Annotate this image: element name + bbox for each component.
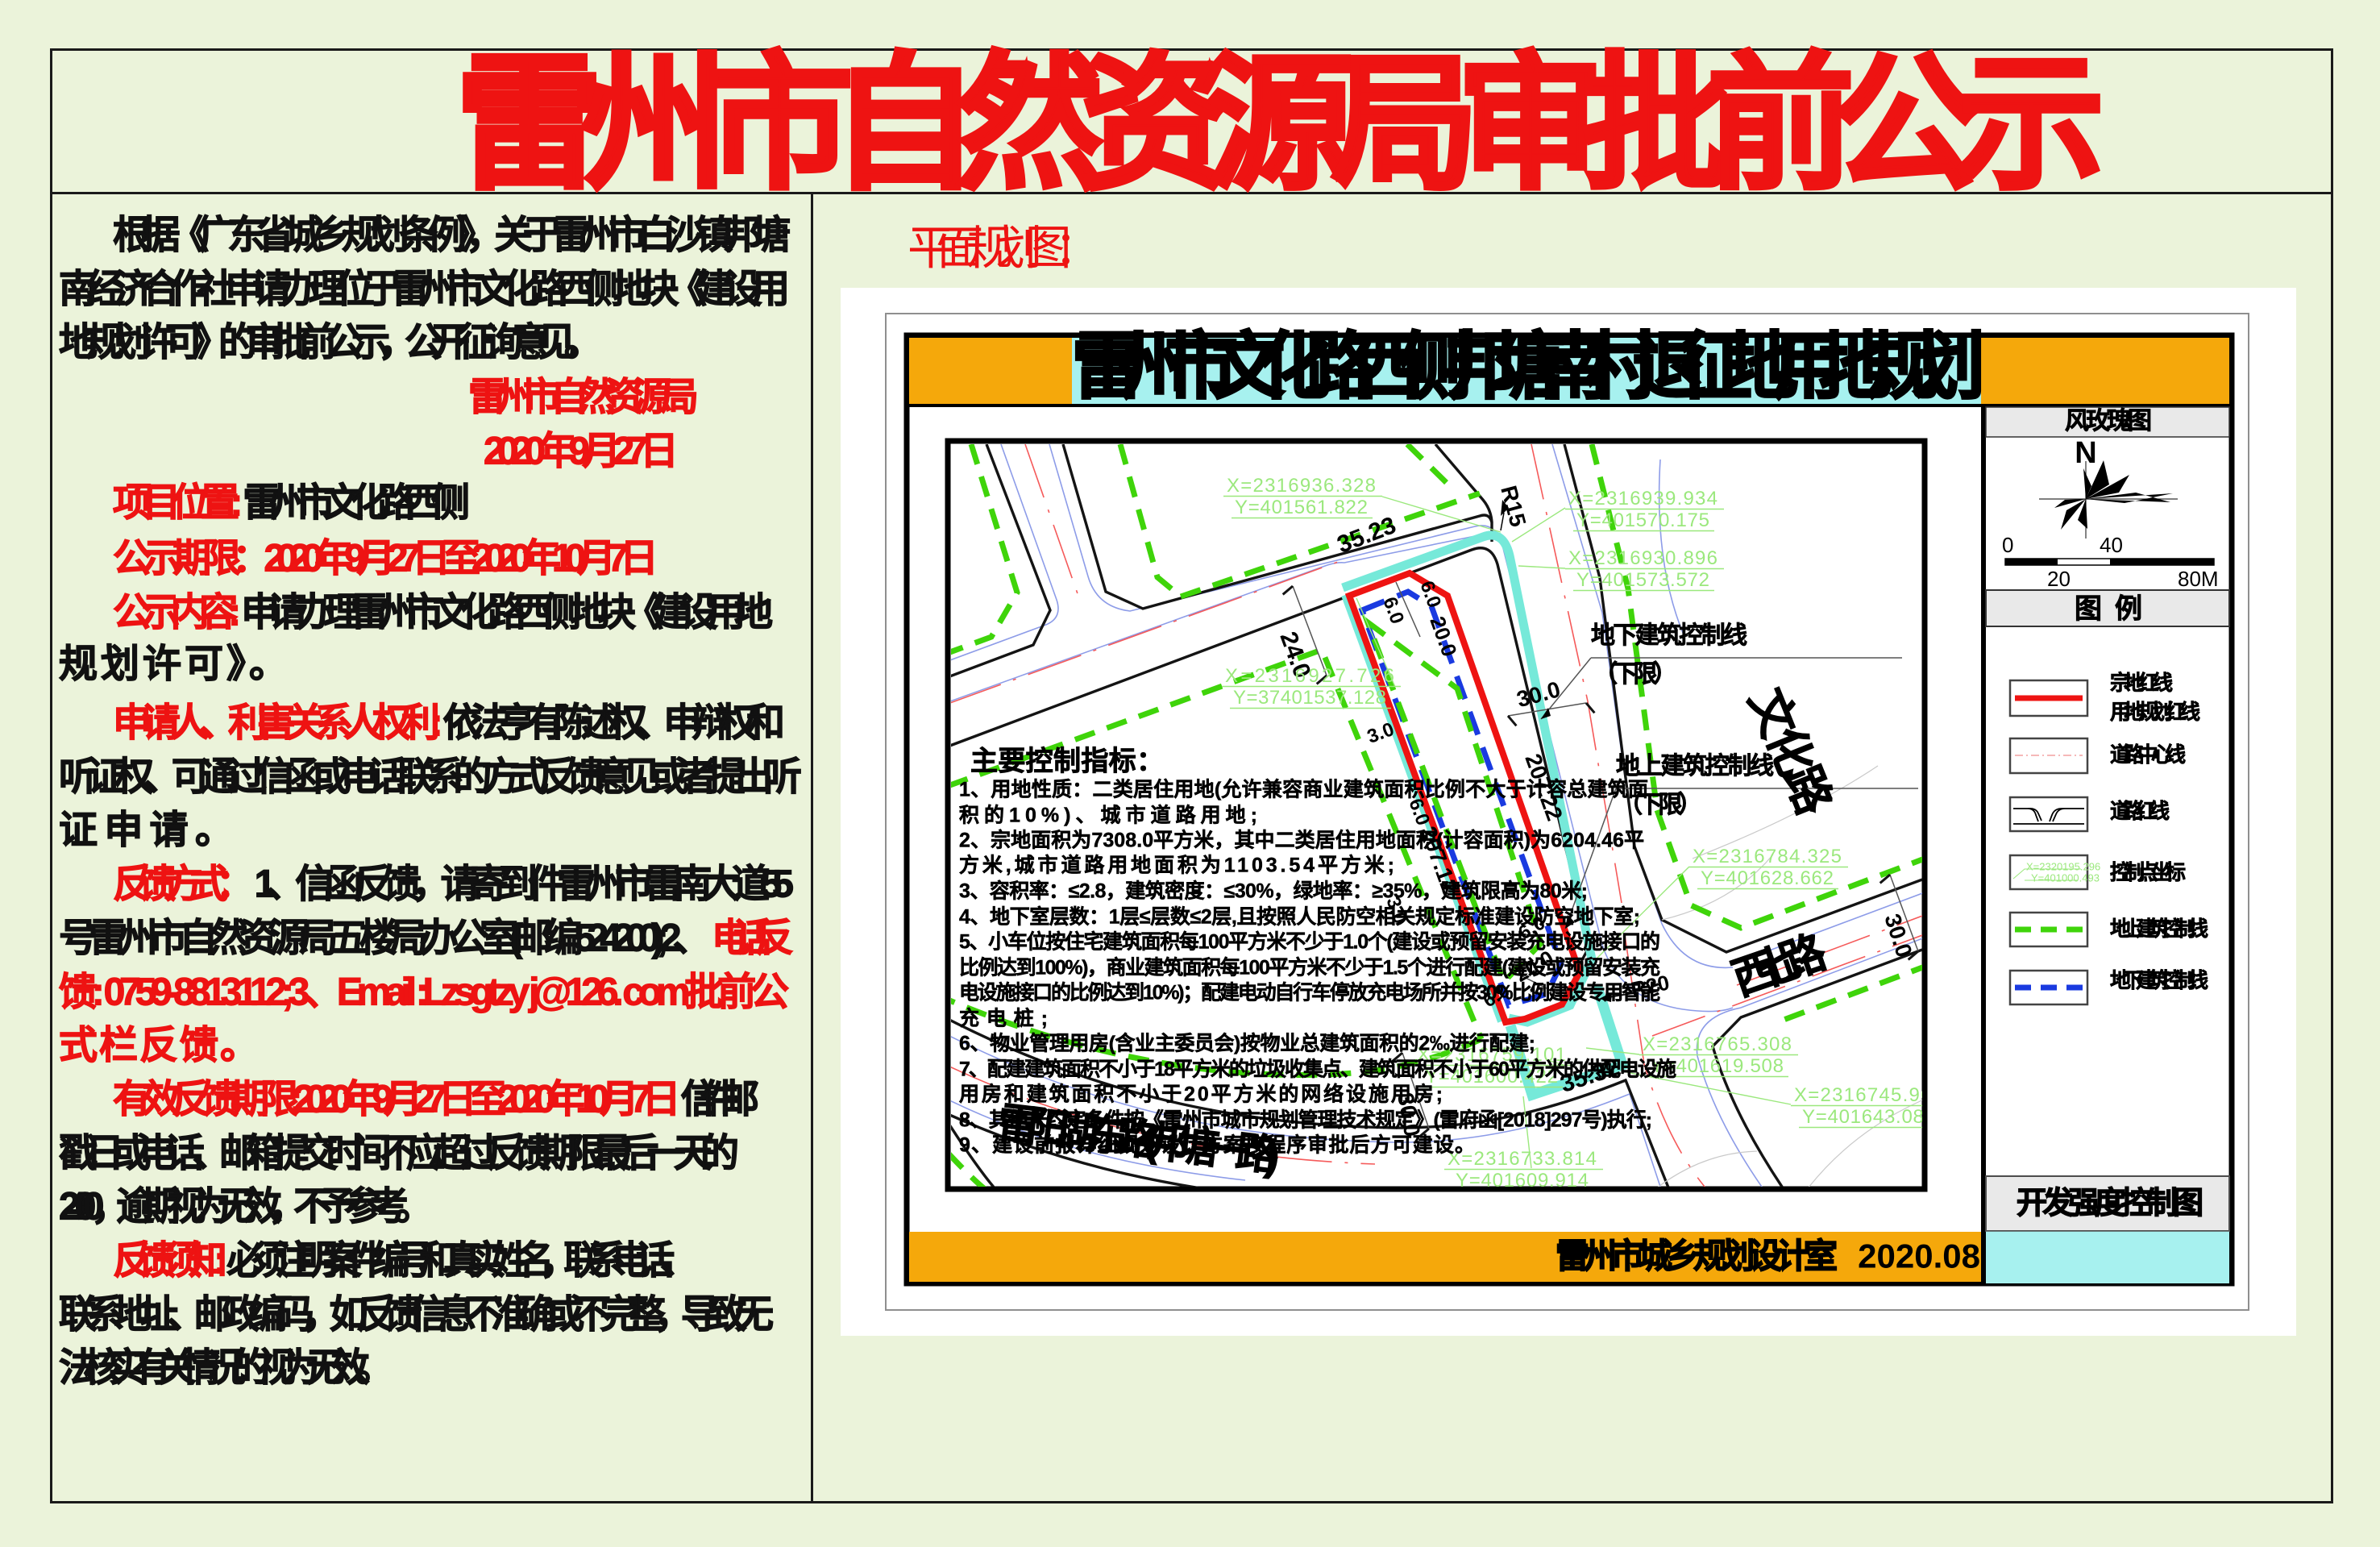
svg-text:式栏反馈。: 式栏反馈。 xyxy=(59,1024,259,1067)
svg-text:（下限）: （下限） xyxy=(1593,660,1677,688)
svg-text:项目位置:: 项目位置: xyxy=(113,481,243,524)
svg-text:依法亨有陈述权、申辩权和: 依法亨有陈述权、申辩权和 xyxy=(443,701,785,744)
svg-text:用房和建筑面积不小于20平方米的网络设施用房;: 用房和建筑面积不小于20平方米的网络设施用房; xyxy=(959,1083,1443,1106)
svg-text:1、用地性质：二类居住用地(允许兼容商业建筑面积比例不大于计: 1、用地性质：二类居住用地(允许兼容商业建筑面积比例不大于计容总建筑面 xyxy=(959,778,1648,801)
svg-text:反馈方式：: 反馈方式： xyxy=(113,863,255,905)
svg-text:Y=37401537.128: Y=37401537.128 xyxy=(1233,687,1386,709)
svg-text:开发强度控制图: 开发强度控制图 xyxy=(2017,1187,2203,1221)
svg-text:40: 40 xyxy=(2100,533,2123,557)
svg-text:道路红线: 道路红线 xyxy=(2110,799,2170,823)
svg-text:听证权、可通过信函或电话联系的方式反馈意见或者提出听: 听证权、可通过信函或电话联系的方式反馈意见或者提出听 xyxy=(59,755,802,798)
svg-text:2、宗地面积为7308.0平方米，其中二类居住用地面积(计容: 2、宗地面积为7308.0平方米，其中二类居住用地面积(计容面积)为6204.4… xyxy=(959,829,1644,852)
svg-text:有效反馈期限:2020年9月27日至2020年10月7日: 有效反馈期限:2020年9月27日至2020年10月7日 xyxy=(113,1078,681,1121)
svg-text:根据《广东省城乡规划条例》，关于雷州市白沙镇邦塘: 根据《广东省城乡规划条例》，关于雷州市白沙镇邦塘 xyxy=(113,214,791,256)
svg-text:5、小车位按住宅建筑面积每100平方米不少于1.0个(建设或: 5、小车位按住宅建筑面积每100平方米不少于1.0个(建设或预留安装充电设施接口… xyxy=(959,930,1660,954)
svg-text:X=2320195.296: X=2320195.296 xyxy=(2026,860,2100,872)
svg-text:申请办理雷州市文化路西侧地块《建设用地: 申请办理雷州市文化路西侧地块《建设用地 xyxy=(241,591,773,634)
svg-text:图 例: 图 例 xyxy=(2075,594,2142,625)
svg-text:地下建筑控制线: 地下建筑控制线 xyxy=(2110,968,2208,992)
svg-text:电话反: 电话反 xyxy=(712,917,794,959)
svg-text:规划许可》。: 规划许可》。 xyxy=(59,643,288,685)
svg-text:2020.08: 2020.08 xyxy=(1858,1237,1980,1275)
svg-text:南经济合作社申请办理位于雷州市文化路西侧地块《建设用: 南经济合作社申请办理位于雷州市文化路西侧地块《建设用 xyxy=(59,268,790,310)
svg-text:X=2316765.308: X=2316765.308 xyxy=(1643,1033,1792,1055)
svg-text:X=2316930.896: X=2316930.896 xyxy=(1568,547,1718,569)
svg-text:风玫瑰图: 风玫瑰图 xyxy=(2065,408,2152,435)
svg-text:X=2316784.325: X=2316784.325 xyxy=(1693,846,1842,867)
svg-text:Y=401561.822: Y=401561.822 xyxy=(1235,497,1368,518)
svg-text:道路中心线: 道路中心线 xyxy=(2110,742,2186,767)
svg-text:电设施接口的比例达到10%)；配建电动自行车停放充电场所并按: 电设施接口的比例达到10%)；配建电动自行车停放充电场所并按30%比例建设专用智… xyxy=(959,981,1660,1004)
svg-text:6、物业管理用房(含业主委员会)按物业总建筑面积的2‰进行配: 6、物业管理用房(含业主委员会)按物业总建筑面积的2‰进行配建; xyxy=(959,1032,1535,1055)
svg-text:戳日或电话、邮箱提交时间不应超过反馈期限最后一天的: 戳日或电话、邮箱提交时间不应超过反馈期限最后一天的 xyxy=(59,1132,739,1175)
svg-text:证申请。: 证申请。 xyxy=(59,809,234,851)
svg-text:0: 0 xyxy=(2002,533,2013,557)
svg-text:雷州市文化路西侧: 雷州市文化路西侧 xyxy=(243,481,470,524)
svg-text:雷州市文化路西侧邦塘南村退征地用地规划: 雷州市文化路西侧邦塘南村退征地用地规划 xyxy=(1072,327,1985,408)
svg-text:公示期限： 2020年9月27日至2020年10月7日: 公示期限： 2020年9月27日至2020年10月7日 xyxy=(113,537,658,580)
svg-text:地上建筑控制线: 地上建筑控制线 xyxy=(2110,917,2208,941)
svg-text:平面规划图：: 平面规划图： xyxy=(908,222,1101,275)
svg-text:Y=401570.175: Y=401570.175 xyxy=(1576,509,1709,531)
svg-text:必须注明案件编号和真实姓名，联系电话、: 必须注明案件编号和真实姓名，联系电话、 xyxy=(226,1239,699,1282)
svg-text:9、建设前报详细规划设计方案按程序审批后方可建设。: 9、建设前报详细规划设计方案按程序审批后方可建设。 xyxy=(959,1133,1475,1157)
svg-text:X=2316745.960: X=2316745.960 xyxy=(1794,1084,1943,1106)
svg-text:Y=401000.493: Y=401000.493 xyxy=(2031,871,2100,884)
svg-text:7、配建建筑面积不小于18平方米的垃圾收集点、建筑面积不小于: 7、配建建筑面积不小于18平方米的垃圾收集点、建筑面积不小于60平方米的供配电设… xyxy=(959,1058,1676,1081)
svg-text:Y=401628.662: Y=401628.662 xyxy=(1701,867,1834,889)
svg-text:号雷州市自然资源局五楼局办公室(邮编524200);2、: 号雷州市自然资源局五楼局办公室(邮编524200);2、 xyxy=(59,917,712,959)
svg-text:地规划许可》的审批前公示，公开征询意见。: 地规划许可》的审批前公示，公开征询意见。 xyxy=(59,321,603,364)
svg-text:馈: 0759-8813112;3、Email :Lzsgt: 馈: 0759-8813112;3、Email :Lzsgtzy j@126. … xyxy=(59,971,789,1013)
svg-text:法核实有关情况的视为无效。: 法核实有关情况的视为无效。 xyxy=(59,1346,394,1389)
svg-text:地上建筑控制线: 地上建筑控制线 xyxy=(1616,752,1774,780)
svg-text:1、信函反馈，请寄到件雷州市雷南大道55: 1、信函反馈，请寄到件雷州市雷南大道55 xyxy=(255,863,794,905)
svg-text:24:00，逾期视为无效，不予参考。: 24:00，逾期视为无效，不予参考。 xyxy=(59,1185,434,1228)
svg-text:Y=401643.081: Y=401643.081 xyxy=(1802,1106,1935,1128)
svg-text:控制点坐标: 控制点坐标 xyxy=(2110,860,2186,884)
svg-text:用地规划红线: 用地规划红线 xyxy=(2110,700,2200,724)
svg-text:雷州市自然资源局: 雷州市自然资源局 xyxy=(468,376,699,418)
svg-text:方米,城市道路用地面积为1103.54平方米;: 方米,城市道路用地面积为1103.54平方米; xyxy=(959,854,1394,877)
svg-text:宗地红线: 宗地红线 xyxy=(2110,671,2173,695)
svg-text:2020年9月27日: 2020年9月27日 xyxy=(484,430,679,472)
svg-text:雷州市城乡规划设计室: 雷州市城乡规划设计室 xyxy=(1556,1237,1838,1275)
svg-text:雷州市自然资源局审批前公示: 雷州市自然资源局审批前公示 xyxy=(456,42,2104,206)
svg-text:信件邮: 信件邮 xyxy=(681,1078,759,1121)
svg-text:公示内容:: 公示内容: xyxy=(113,591,241,634)
svg-text:X=2316936.328: X=2316936.328 xyxy=(1227,475,1376,497)
svg-text:积的10%)、城市道路用地;: 积的10%)、城市道路用地; xyxy=(959,804,1257,827)
svg-text:20: 20 xyxy=(2047,567,2071,591)
svg-text:地下建筑控制线: 地下建筑控制线 xyxy=(1591,622,1747,649)
svg-text:主要控制指标：: 主要控制指标： xyxy=(970,746,1164,777)
svg-text:联系地址、邮政编码，如反馈信息不准确或不完整，导致无: 联系地址、邮政编码，如反馈信息不准确或不完整，导致无 xyxy=(59,1293,774,1336)
svg-text:3、容积率：≤2.8，建筑密度：≤30%，绿地率：≥35%，: 3、容积率：≤2.8，建筑密度：≤30%，绿地率：≥35%，建筑限高为80米; xyxy=(959,880,1588,903)
svg-text:反馈须知:: 反馈须知: xyxy=(113,1239,227,1282)
svg-text:X=2316939.934: X=2316939.934 xyxy=(1568,488,1718,509)
svg-text:8、其他未约定条件按《雷州市城市规划管理技术规定》(雷府函[: 8、其他未约定条件按《雷州市城市规划管理技术规定》(雷府函[2018]297号)… xyxy=(959,1108,1652,1132)
svg-text:80M: 80M xyxy=(2178,567,2219,591)
svg-text:Y=401573.572: Y=401573.572 xyxy=(1576,569,1709,591)
svg-text:4、地下室层数：1层≤层数≤2层,且按照人民防空相关规定标准: 4、地下室层数：1层≤层数≤2层,且按照人民防空相关规定标准建设防空地下室; xyxy=(959,905,1640,929)
svg-text:比例达到100%)，商业建筑面积每100平方米不少于1.5个: 比例达到100%)，商业建筑面积每100平方米不少于1.5个进行配建(建设或预留… xyxy=(959,956,1660,979)
svg-text:申请人、利害关系人权利:: 申请人、利害关系人权利: xyxy=(113,701,443,744)
